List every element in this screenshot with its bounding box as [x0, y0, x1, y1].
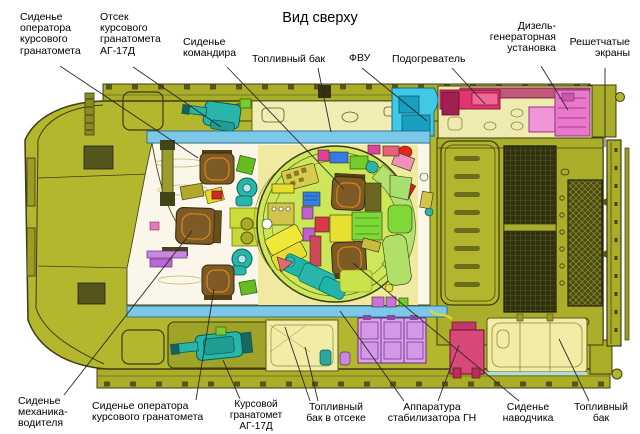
label-commander-seat: Сиденье командира — [183, 37, 236, 59]
engine-grid-grille — [504, 146, 556, 312]
label-driver-seat: Сиденье механика- водителя — [18, 396, 68, 430]
driver-seat-graphic — [175, 207, 221, 245]
label-fuel-tank-top: Топливный бак — [252, 54, 325, 65]
engine-ribbed-hatch — [441, 141, 499, 305]
label-fvu: ФВУ — [349, 53, 370, 64]
label-diesel-generator: Дизель- генераторная установка — [474, 21, 556, 55]
fvu-graphic — [392, 88, 438, 136]
diagram-title: Вид сверху — [240, 10, 400, 26]
label-seat-operator-front-top: Сиденье оператора курсового гранатомета — [20, 12, 81, 57]
operator-seat-top — [200, 150, 234, 184]
label-gunner-seat: Сиденье наводчика — [496, 402, 560, 424]
label-bay-course-launcher: Отсек курсового гранатомета АГ-17Д — [100, 12, 161, 57]
label-course-launcher: Курсовой гранатомет АГ-17Д — [224, 399, 288, 432]
stabilizer-unit-graphic — [450, 322, 484, 378]
label-seat-operator-front-bottom: Сиденье оператора курсового гранатомета — [92, 401, 203, 423]
label-heater: Подогреватель — [392, 54, 465, 65]
cyan-band-bottom — [127, 306, 447, 317]
fuel-tank-violet-graphic — [358, 315, 426, 363]
operator-seat-bottom — [202, 265, 234, 300]
cyan-band-top — [147, 131, 430, 143]
label-fuel-tank-right: Топливный бак — [572, 402, 630, 424]
rear-top-compartment — [392, 86, 592, 138]
diagram-canvas: Вид сверху Сиденье оператора курсового г… — [0, 0, 640, 434]
commander-seat-graphic — [331, 173, 366, 211]
engine-mesh-grille — [568, 180, 602, 306]
label-fuel-tank-bay: Топливный бак в отсеке — [300, 402, 372, 424]
label-stabilizer-equipment: Аппаратура стабилизатора ГН — [380, 402, 484, 424]
label-lattice-screens: Решетчатые экраны — [560, 37, 630, 59]
